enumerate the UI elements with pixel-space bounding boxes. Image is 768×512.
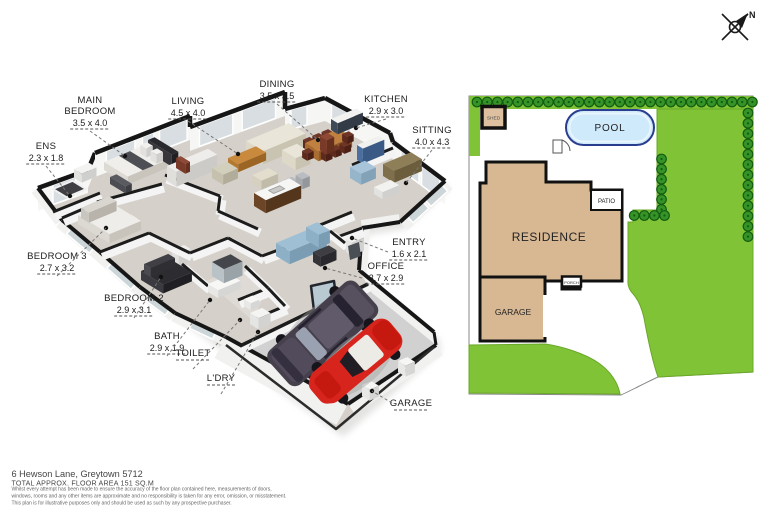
- svg-text:BEDROOM 3: BEDROOM 3: [27, 251, 87, 262]
- svg-text:MAIN: MAIN: [78, 95, 103, 106]
- svg-text:windows, rooms and any other i: windows, rooms and any other items are a…: [12, 494, 287, 500]
- svg-text:ENTRY: ENTRY: [392, 237, 426, 248]
- svg-text:4.0 x 4.3: 4.0 x 4.3: [415, 137, 450, 147]
- svg-text:6 Hewson Lane, Greytown 5712: 6 Hewson Lane, Greytown 5712: [12, 469, 143, 479]
- svg-text:KITCHEN: KITCHEN: [364, 94, 408, 105]
- svg-text:RESIDENCE: RESIDENCE: [512, 230, 587, 244]
- svg-text:2.9 x 3.1: 2.9 x 3.1: [117, 305, 152, 315]
- svg-text:4.5 x 4.0: 4.5 x 4.0: [171, 108, 206, 118]
- svg-text:OFFICE: OFFICE: [368, 261, 405, 272]
- svg-text:SITTING: SITTING: [412, 125, 452, 136]
- svg-text:PATIO: PATIO: [598, 199, 615, 205]
- svg-text:GARAGE: GARAGE: [390, 398, 432, 409]
- svg-text:N: N: [749, 10, 756, 20]
- svg-text:1.6 x 2.1: 1.6 x 2.1: [392, 249, 427, 259]
- svg-text:2.9 x 3.0: 2.9 x 3.0: [369, 106, 404, 116]
- svg-text:BEDROOM 2: BEDROOM 2: [104, 293, 164, 304]
- svg-text:3.7 x 2.9: 3.7 x 2.9: [369, 273, 404, 283]
- svg-text:BATH: BATH: [154, 331, 180, 342]
- svg-text:Whilst every attempt has been: Whilst every attempt has been made to en…: [12, 487, 272, 493]
- svg-text:L'DRY: L'DRY: [207, 373, 236, 384]
- svg-text:SHED: SHED: [487, 116, 501, 122]
- svg-text:POOL: POOL: [595, 123, 626, 134]
- svg-text:BEDROOM: BEDROOM: [64, 106, 115, 117]
- svg-text:PORCH: PORCH: [564, 280, 579, 285]
- svg-text:TOILET: TOILET: [176, 348, 211, 359]
- svg-text:3.5 x 4.0: 3.5 x 4.0: [73, 118, 108, 128]
- svg-text:ENS: ENS: [36, 141, 56, 152]
- svg-text:2.3 x 1.8: 2.3 x 1.8: [29, 153, 64, 163]
- svg-text:This plan is for illustrative: This plan is for illustrative purposes o…: [12, 501, 232, 507]
- svg-text:DINING: DINING: [259, 79, 294, 90]
- svg-text:GARAGE: GARAGE: [495, 307, 532, 317]
- svg-text:LIVING: LIVING: [172, 96, 205, 107]
- svg-text:3.5 x 3.5: 3.5 x 3.5: [260, 91, 295, 101]
